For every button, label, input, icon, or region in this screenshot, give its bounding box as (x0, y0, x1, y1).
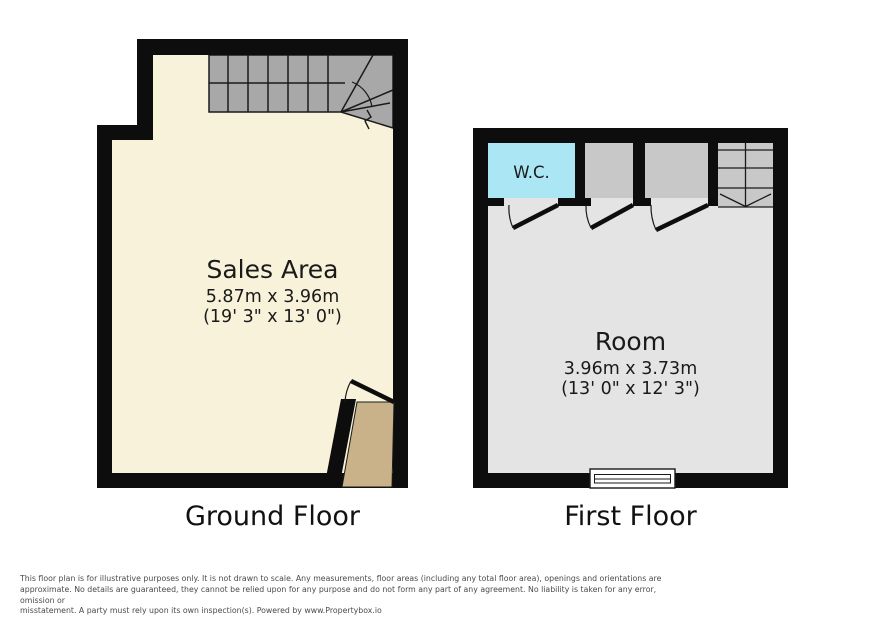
wall-stub (488, 198, 504, 206)
first-floor-staircase (718, 143, 773, 207)
closet-1 (585, 143, 633, 198)
wall-stub (585, 198, 591, 206)
floorplan-drawing (0, 0, 886, 560)
room-name: Room (473, 328, 788, 356)
window (590, 469, 675, 488)
room-name: Sales Area (137, 256, 408, 284)
disclaimer-text: This floor plan is for illustrative purp… (20, 574, 680, 617)
wall-stub (645, 198, 651, 206)
partition-closet2-stairs (708, 143, 718, 206)
partition-closet1-closet2 (633, 143, 645, 206)
room-dimensions-metric: 3.96m x 3.73m (473, 359, 788, 379)
first-floor-plan (473, 128, 788, 488)
wall-stub (558, 198, 585, 206)
room-dimensions-imperial: (19' 3" x 13' 0") (137, 307, 408, 327)
disclaimer-line: approximate. No details are guaranteed, … (20, 585, 680, 607)
first-floor-title: First Floor (473, 501, 788, 532)
closet-2 (645, 143, 708, 198)
room-dimensions-imperial: (13' 0" x 12' 3") (473, 379, 788, 399)
wc-label: W.C. (488, 163, 575, 182)
first-floor-room-label: Room 3.96m x 3.73m (13' 0" x 12' 3") (473, 328, 788, 399)
room-dimensions-metric: 5.87m x 3.96m (137, 287, 408, 307)
sales-area-label: Sales Area 5.87m x 3.96m (19' 3" x 13' 0… (137, 256, 408, 327)
disclaimer-line: This floor plan is for illustrative purp… (20, 574, 680, 585)
partition-wc-closet1 (575, 143, 585, 206)
floorplan-canvas: Sales Area 5.87m x 3.96m (19' 3" x 13' 0… (0, 0, 886, 620)
disclaimer-line: misstatement. A party must rely upon its… (20, 606, 680, 617)
ground-floor-title: Ground Floor (137, 501, 408, 532)
